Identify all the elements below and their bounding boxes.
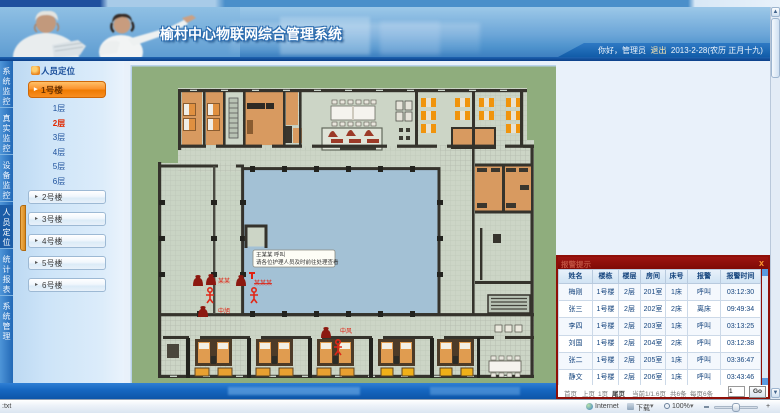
svg-text:请各位护理人员及时前往处理查看: 请各位护理人员及时前往处理查看 [256, 258, 339, 266]
svg-text:某某: 某某 [218, 278, 230, 285]
svg-text:中旭: 中旭 [218, 307, 230, 315]
svg-text:某某某: 某某某 [254, 280, 272, 287]
svg-text:中风: 中风 [340, 327, 352, 335]
svg-text:王某某 呼叫: 王某某 呼叫 [256, 251, 285, 259]
